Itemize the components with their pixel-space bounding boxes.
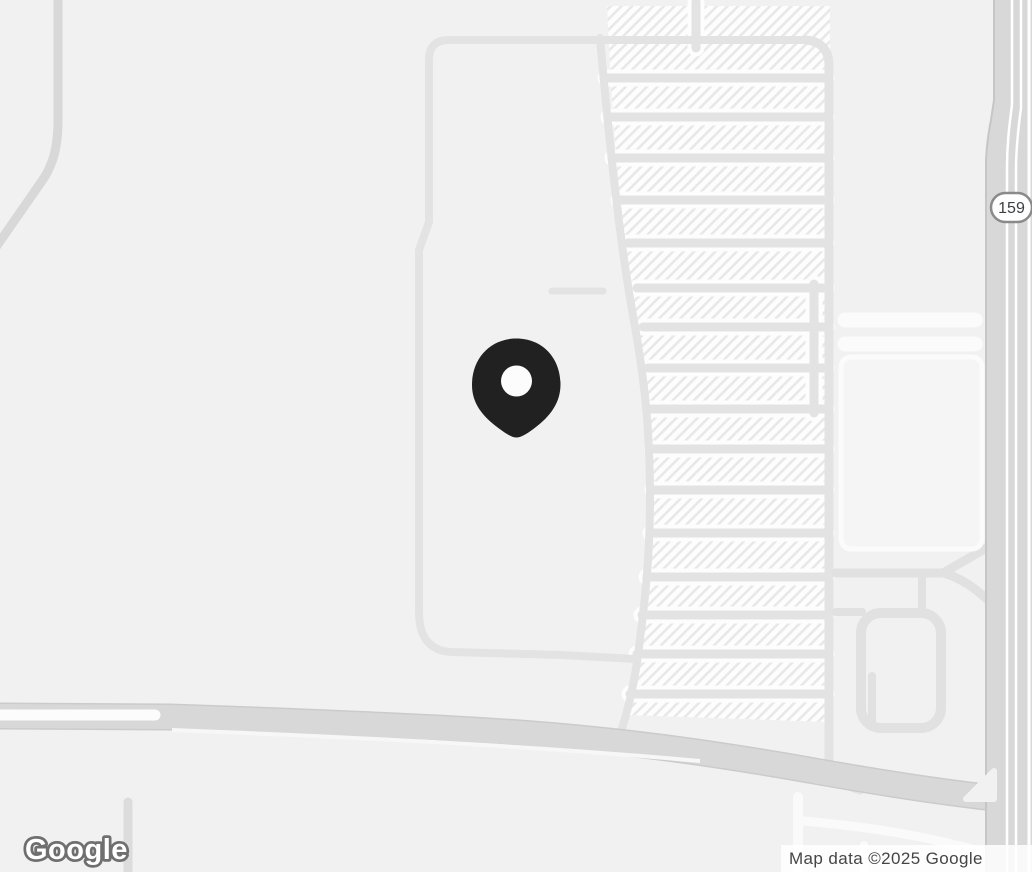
pin-center-dot bbox=[501, 366, 532, 397]
map-canvas[interactable]: 159 Map data ©2025 Google Google bbox=[0, 0, 1032, 872]
google-logo[interactable]: Google bbox=[25, 834, 128, 866]
map-attribution[interactable]: Map data ©2025 Google bbox=[781, 845, 1032, 872]
route-shield-159: 159 bbox=[991, 193, 1032, 222]
attribution-text[interactable]: Map data ©2025 Google bbox=[789, 849, 983, 868]
map-tiles: 159 Map data ©2025 Google Google bbox=[0, 0, 1032, 872]
route-shield-label: 159 bbox=[998, 200, 1025, 217]
east-parcel bbox=[841, 357, 982, 549]
